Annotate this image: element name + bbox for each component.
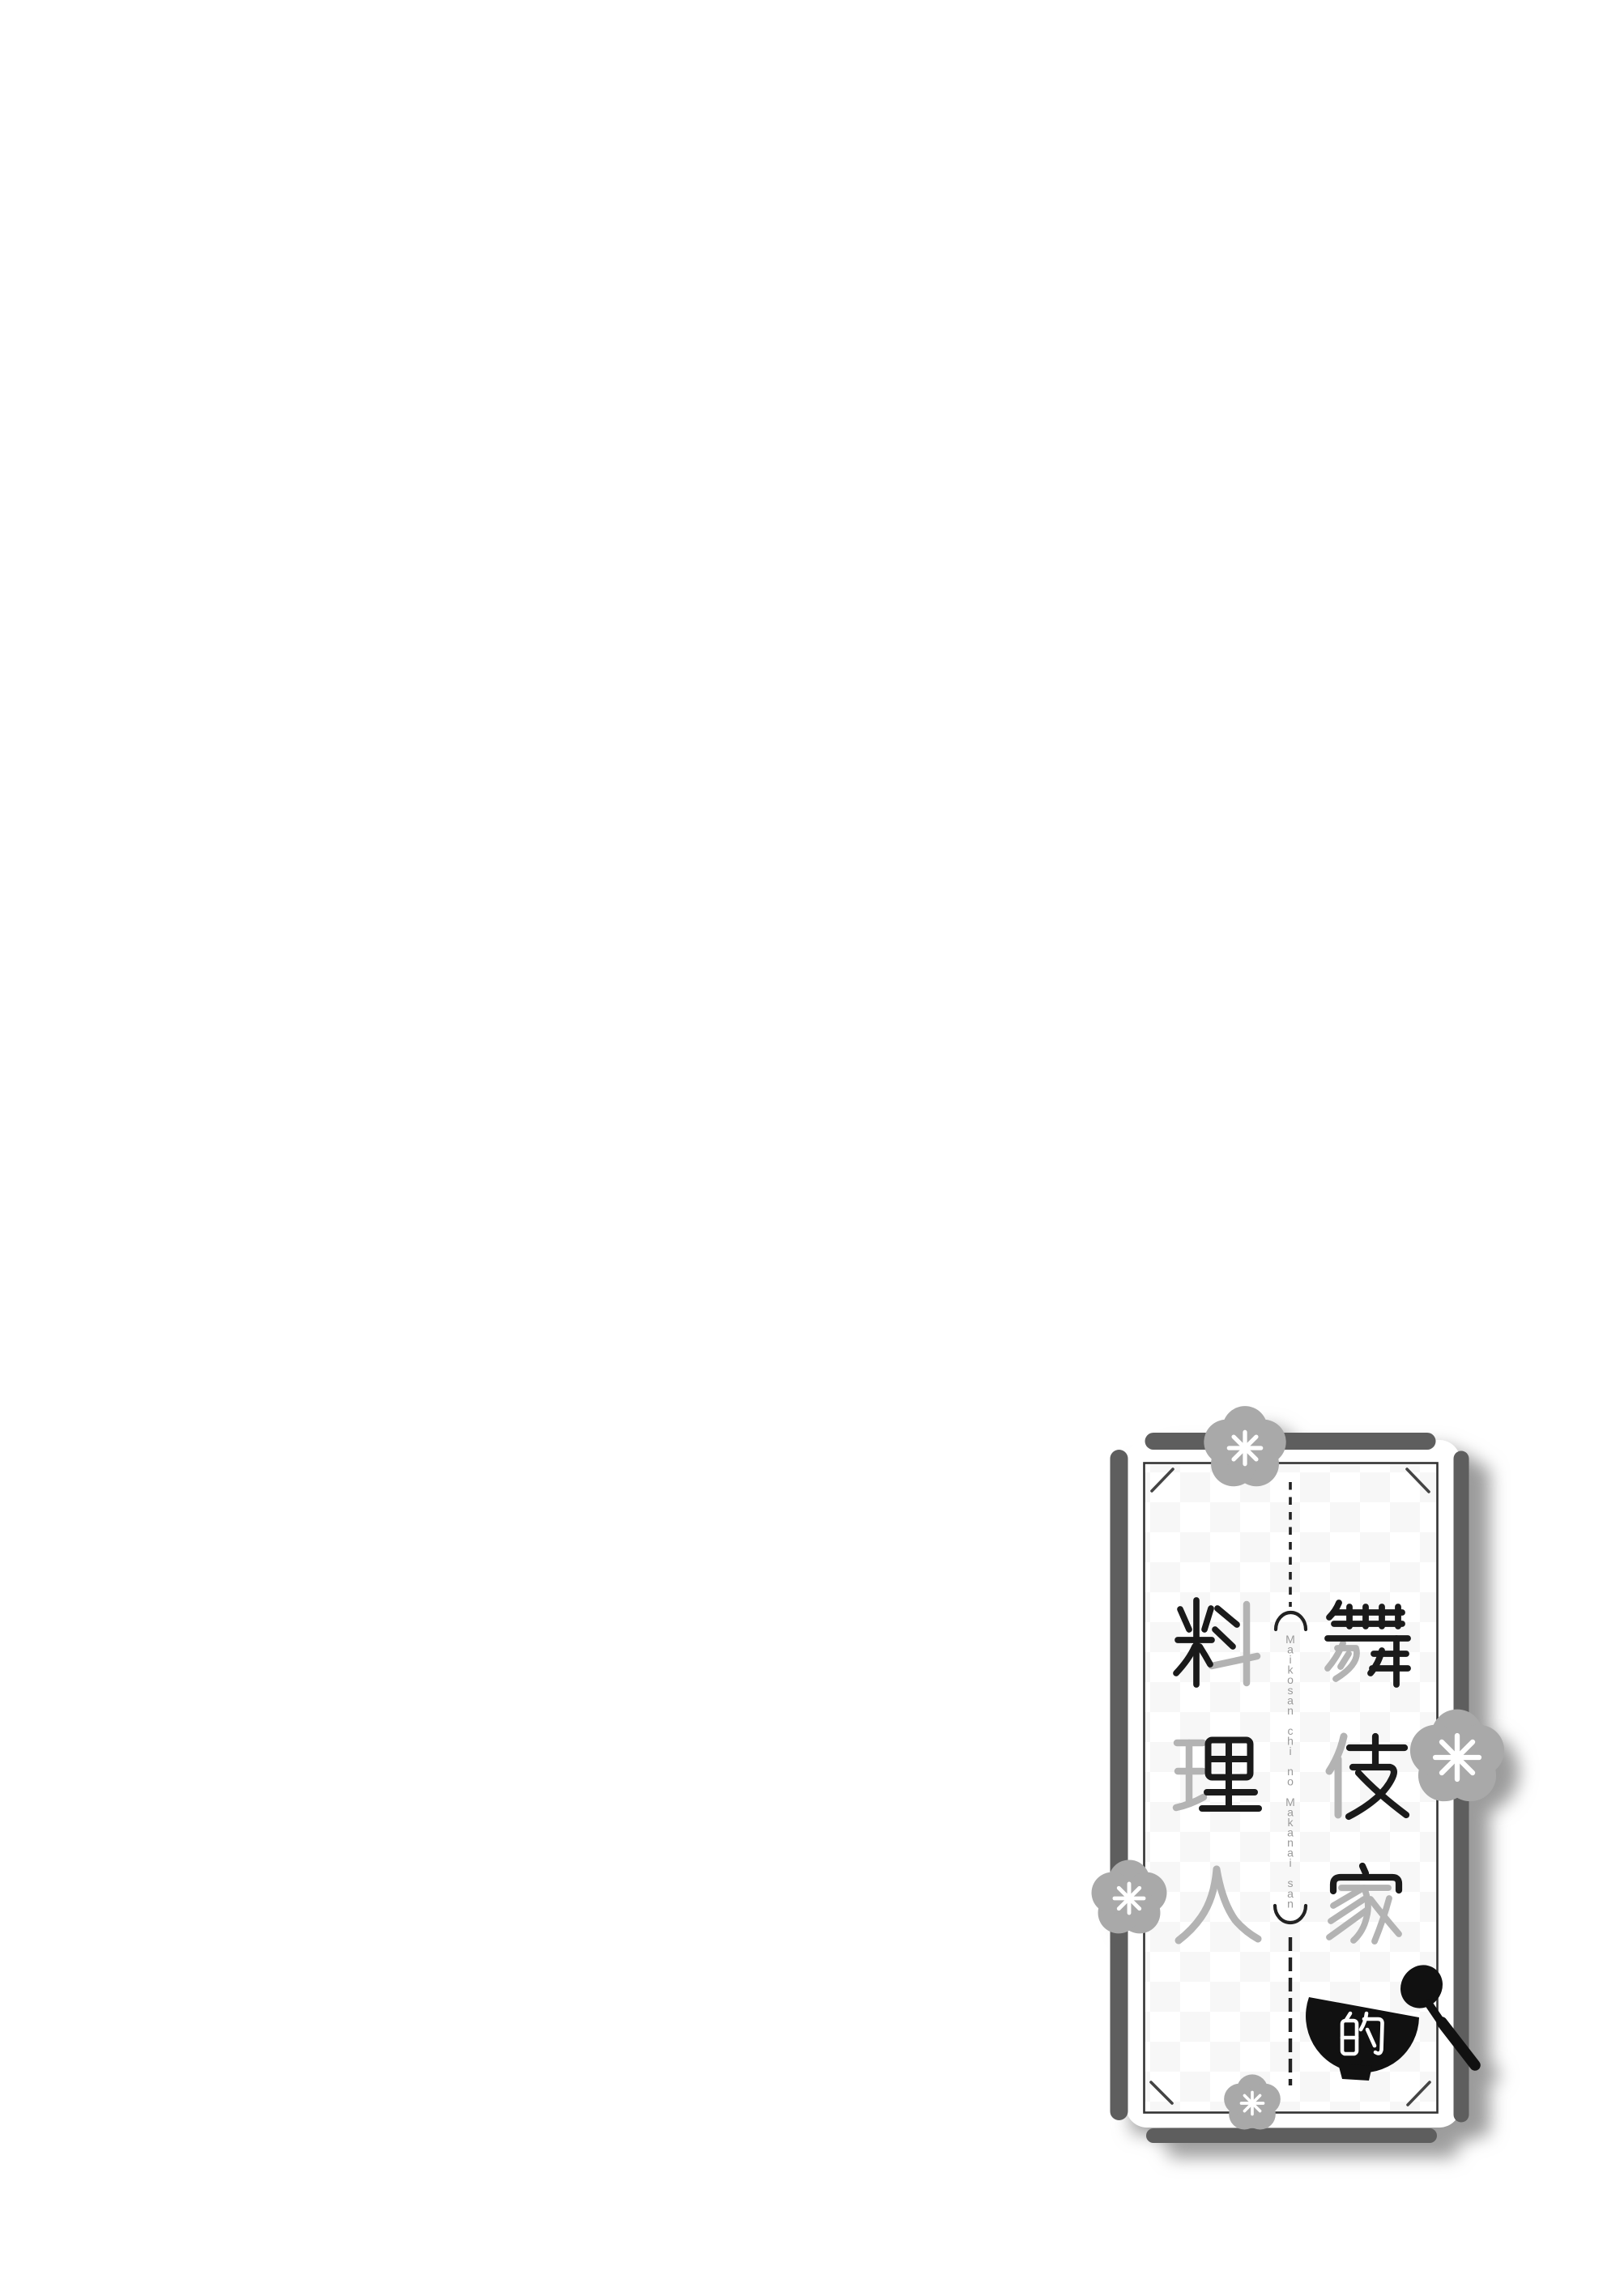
svg-text:o: o bbox=[1287, 1775, 1294, 1788]
svg-text:n: n bbox=[1287, 1704, 1294, 1717]
svg-text:n: n bbox=[1287, 1897, 1294, 1910]
svg-text:i: i bbox=[1289, 1856, 1291, 1869]
svg-text:i: i bbox=[1289, 1744, 1291, 1757]
